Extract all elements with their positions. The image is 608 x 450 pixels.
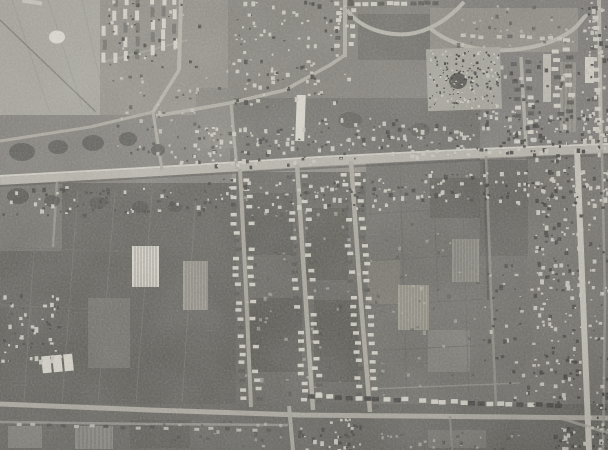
aerial-photograph: [0, 0, 608, 450]
aerial-photo-svg: [0, 0, 608, 450]
photo-vignette: [0, 0, 608, 450]
